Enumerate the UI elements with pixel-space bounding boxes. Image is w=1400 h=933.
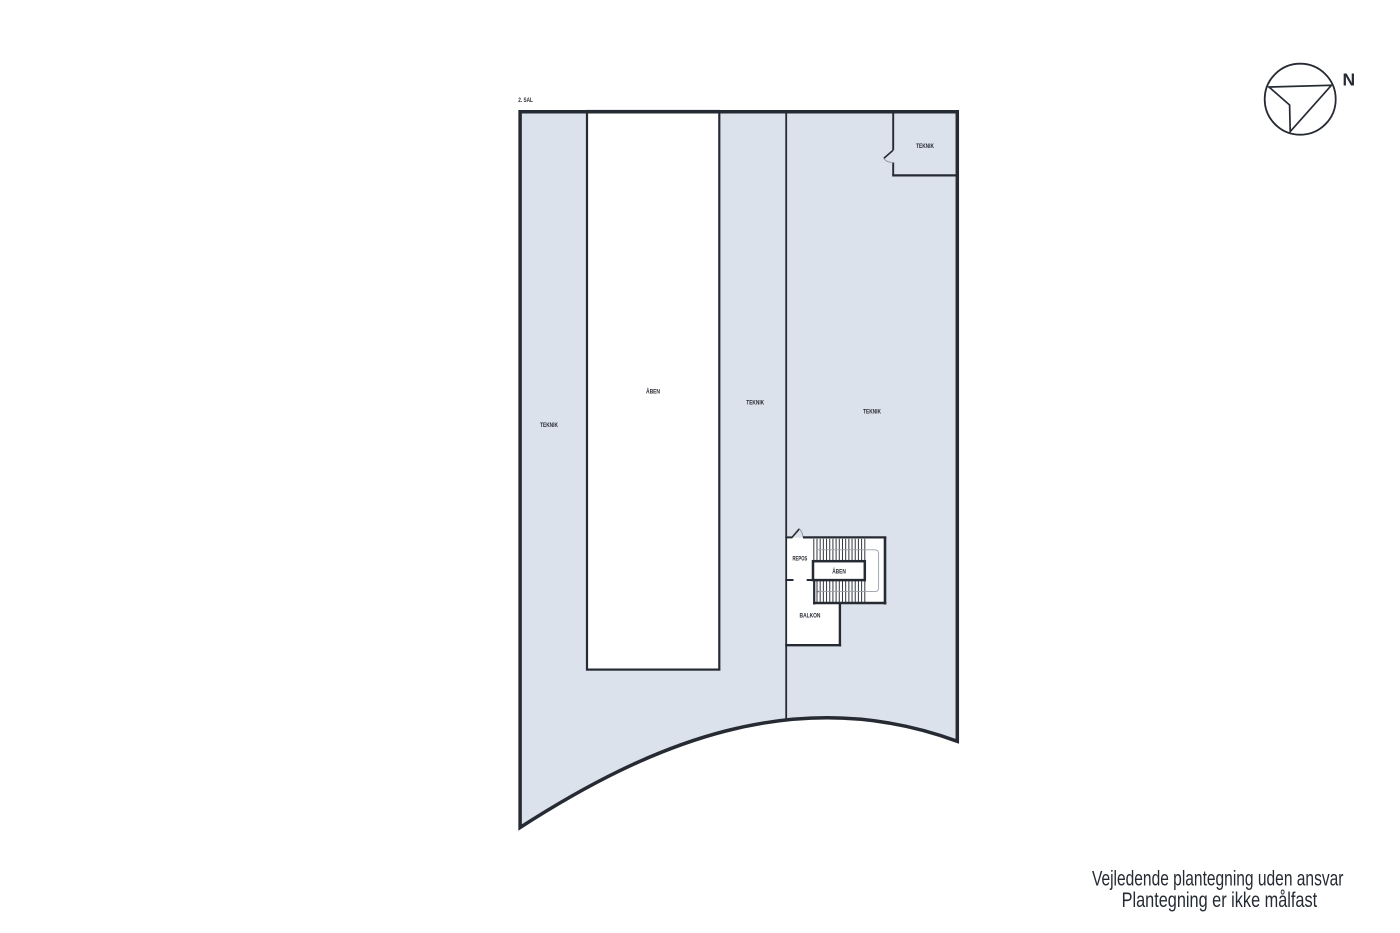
svg-text:Plantegning er ikke målfast: Plantegning er ikke målfast — [1122, 889, 1318, 912]
svg-text:Vejledende plantegning uden an: Vejledende plantegning uden ansvar — [1092, 867, 1344, 890]
svg-text:2. SAL: 2. SAL — [518, 97, 533, 104]
svg-text:ÅBEN: ÅBEN — [646, 389, 660, 396]
svg-text:ÅBEN: ÅBEN — [832, 569, 846, 576]
svg-text:REPOS: REPOS — [793, 556, 808, 563]
svg-text:TEKNIK: TEKNIK — [540, 422, 558, 429]
svg-text:TEKNIK: TEKNIK — [746, 399, 764, 406]
svg-text:BALKON: BALKON — [800, 613, 821, 620]
svg-text:TEKNIK: TEKNIK — [863, 409, 881, 416]
svg-text:TEKNIK: TEKNIK — [916, 143, 934, 150]
svg-text:N: N — [1342, 70, 1355, 90]
